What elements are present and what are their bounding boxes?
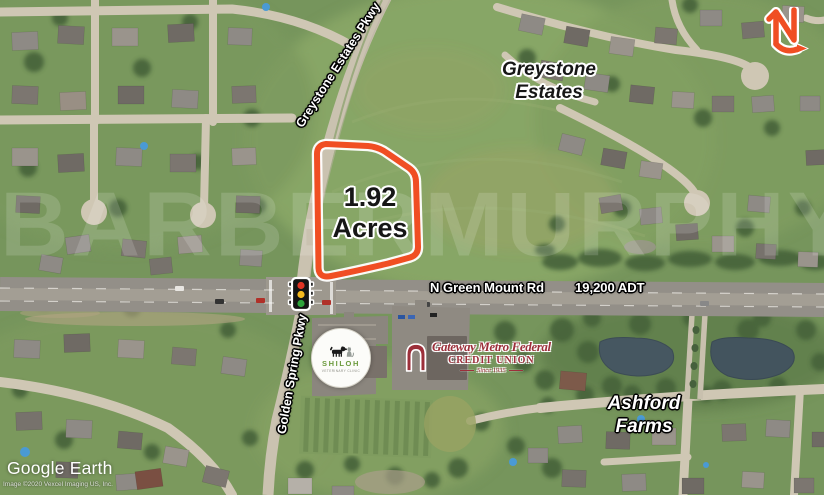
shiloh-name: SHILOH: [322, 359, 360, 368]
dog-and-cat-icon: [327, 344, 355, 358]
imagery-credit: Image ©2020 Vexcel Imaging US, Inc.: [3, 481, 113, 488]
flourish-line: [509, 370, 523, 371]
neighborhood-label-greystone-estates: Greystone Estates: [493, 58, 605, 104]
parcel-outline: [0, 0, 824, 495]
shiloh-vet-clinic-logo: SHILOH VETERINARY CLINIC: [311, 328, 371, 388]
traffic-light-icon: [285, 276, 317, 314]
parcel-acreage-label: 1.92 Acres: [315, 182, 425, 244]
gateway-credit-union: CREDIT UNION: [448, 355, 535, 366]
north-arrow-icon: [762, 7, 810, 57]
gateway-name: Gateway Metro Federal: [432, 339, 551, 355]
neighborhood-label-ashford-farms: Ashford Farms: [588, 392, 700, 438]
gateway-credit-union-logo: Gateway Metro Federal CREDIT UNION Since…: [403, 339, 551, 374]
aerial-site-map: BARBERMURPHY 1.92 Acres Greystone Estate…: [0, 0, 824, 495]
shiloh-tagline: VETERINARY CLINIC: [322, 369, 360, 373]
acreage-value: 1.92: [315, 182, 425, 213]
road-label-n-green-mount-rd: N Green Mount Rd: [430, 281, 544, 295]
arch-icon: [403, 341, 429, 372]
acreage-unit: Acres: [315, 213, 425, 244]
flourish-line: [460, 370, 474, 371]
gateway-since: Since 1935: [477, 367, 506, 374]
google-earth-logo: Google Earth: [7, 458, 113, 479]
traffic-count-label: 19,200 ADT: [575, 281, 645, 295]
